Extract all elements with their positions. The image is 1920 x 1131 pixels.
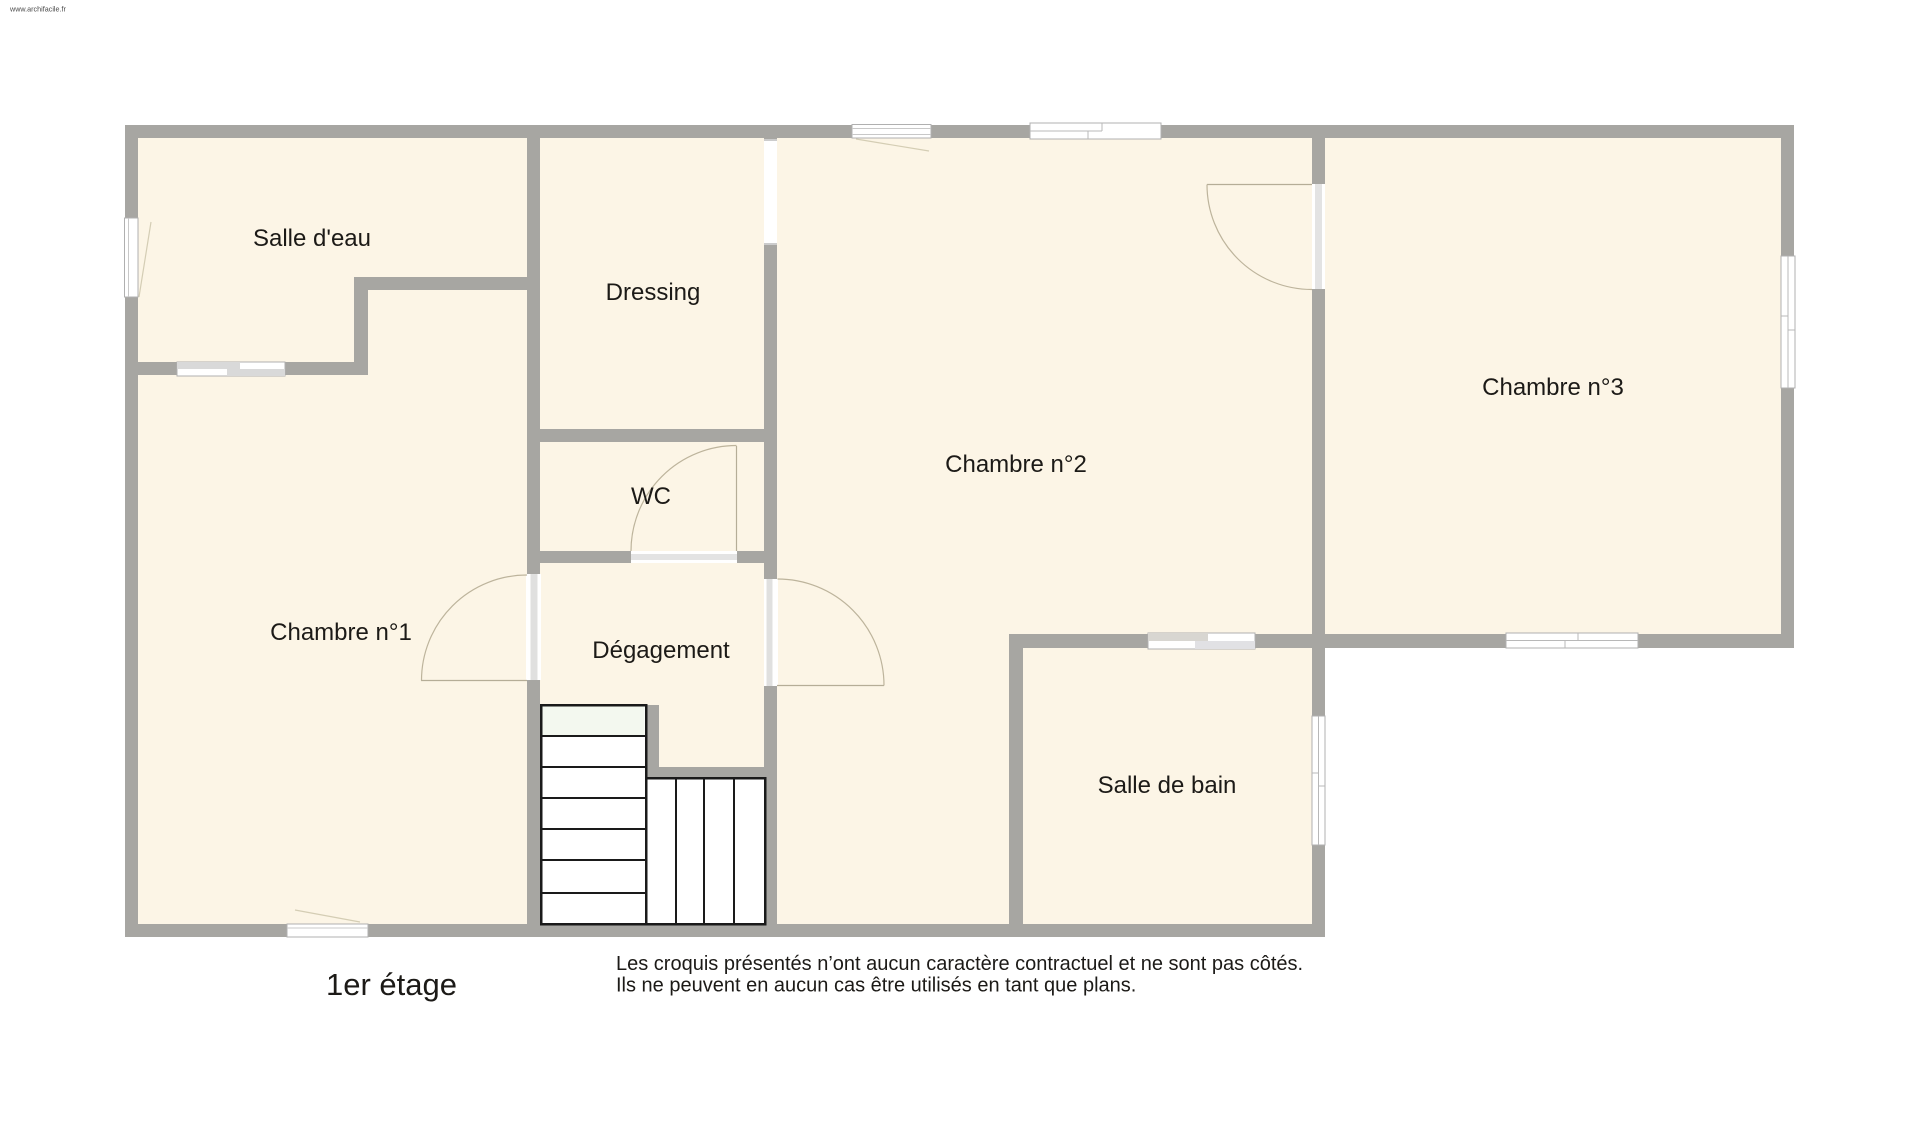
svg-text:Chambre n°3: Chambre n°3 <box>1482 374 1624 401</box>
svg-text:Les croquis présentés n’ont au: Les croquis présentés n’ont aucun caract… <box>616 953 1303 975</box>
svg-text:Chambre n°2: Chambre n°2 <box>945 451 1087 478</box>
svg-text:Ils ne peuvent en aucun cas êt: Ils ne peuvent en aucun cas être utilisé… <box>616 975 1136 997</box>
svg-text:1er étage: 1er étage <box>326 967 457 1002</box>
svg-text:Salle de bain: Salle de bain <box>1098 772 1237 799</box>
svg-text:Chambre n°1: Chambre n°1 <box>270 619 412 646</box>
svg-text:Dégagement: Dégagement <box>592 637 730 664</box>
svg-text:Dressing: Dressing <box>606 279 701 306</box>
svg-text:www.archifacile.fr: www.archifacile.fr <box>9 5 67 14</box>
svg-text:Salle d'eau: Salle d'eau <box>253 225 371 252</box>
svg-text:WC: WC <box>631 483 671 510</box>
